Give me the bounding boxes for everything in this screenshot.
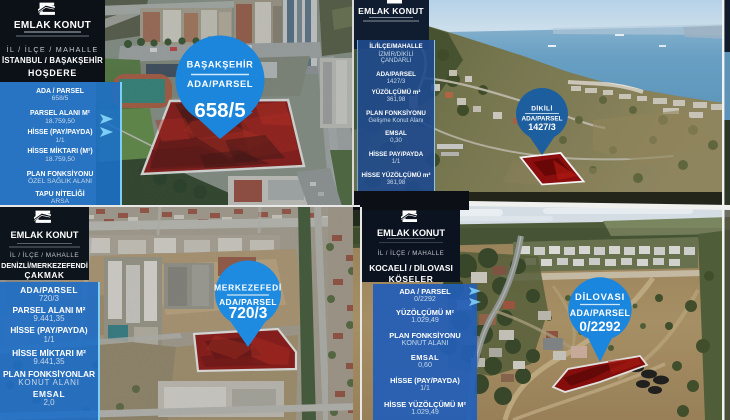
svg-text:ADA/PARSEL: ADA/PARSEL [187, 78, 253, 89]
svg-text:ADA/PARSEL: ADA/PARSEL [570, 308, 631, 318]
svg-text:DİKİLİ: DİKİLİ [531, 105, 552, 113]
svg-text:DİLOVASI: DİLOVASI [575, 291, 625, 302]
svg-text:BAŞAKŞEHİR: BAŞAKŞEHİR [187, 60, 254, 70]
svg-text:658/5: 658/5 [194, 99, 245, 122]
svg-text:MERKEZEFEDİ: MERKEZEFEDİ [214, 283, 282, 293]
svg-text:1427/3: 1427/3 [528, 122, 556, 132]
svg-text:720/3: 720/3 [229, 305, 268, 322]
svg-text:0/2292: 0/2292 [579, 319, 620, 334]
